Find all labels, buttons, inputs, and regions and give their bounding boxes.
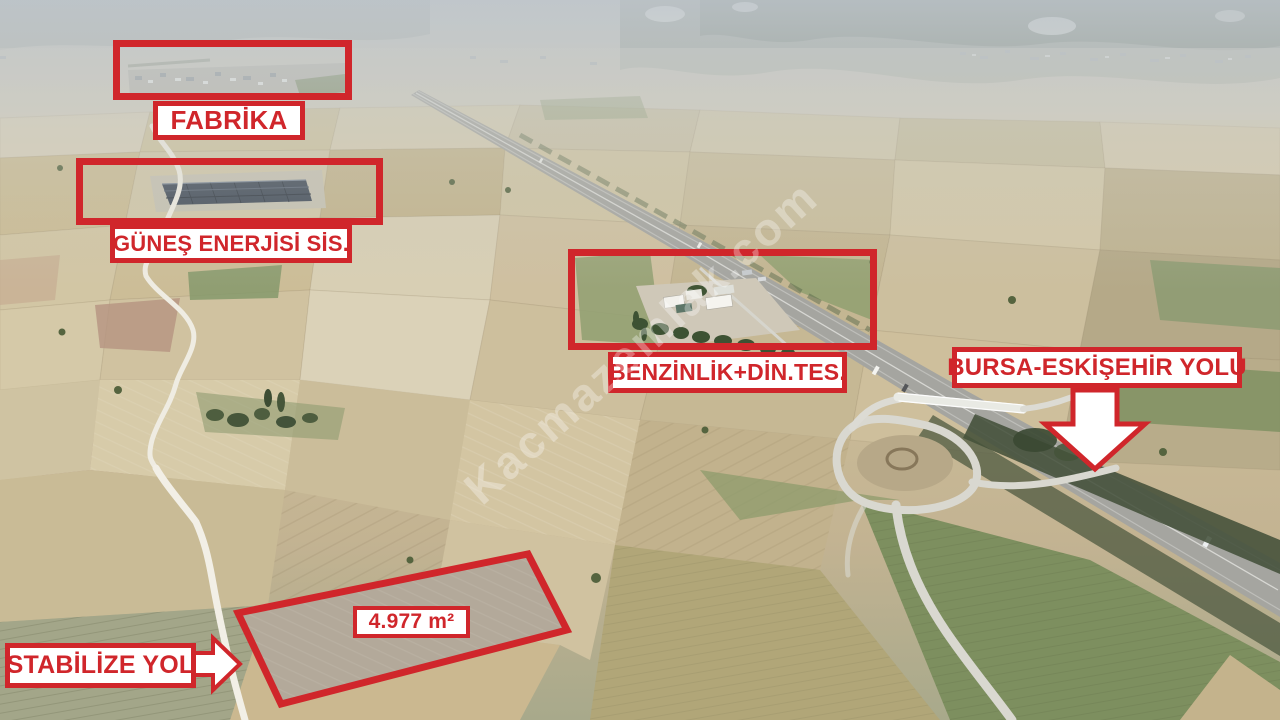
annotated-aerial-screenshot: FABRİKA GÜNEŞ ENERJİSİ SİS. BENZİNLİK+Dİ… bbox=[0, 0, 1280, 720]
stabilize-road-label: STABİLİZE YOL bbox=[5, 643, 196, 688]
solar-energy-label: GÜNEŞ ENERJİSİ SİS. bbox=[110, 224, 352, 263]
fabrika-label: FABRİKA bbox=[153, 101, 305, 140]
gas-station-region-box bbox=[568, 249, 877, 350]
down-arrow-icon bbox=[1035, 387, 1155, 475]
right-arrow-icon bbox=[190, 633, 246, 697]
solar-energy-region-box bbox=[76, 158, 383, 225]
fabrika-region-box bbox=[113, 40, 352, 100]
parcel-area-label: 4.977 m² bbox=[353, 606, 470, 638]
highway-name-label: BURSA-ESKİŞEHİR YOLU bbox=[952, 347, 1242, 388]
gas-station-label: BENZİNLİK+DİN.TES. bbox=[608, 352, 847, 393]
